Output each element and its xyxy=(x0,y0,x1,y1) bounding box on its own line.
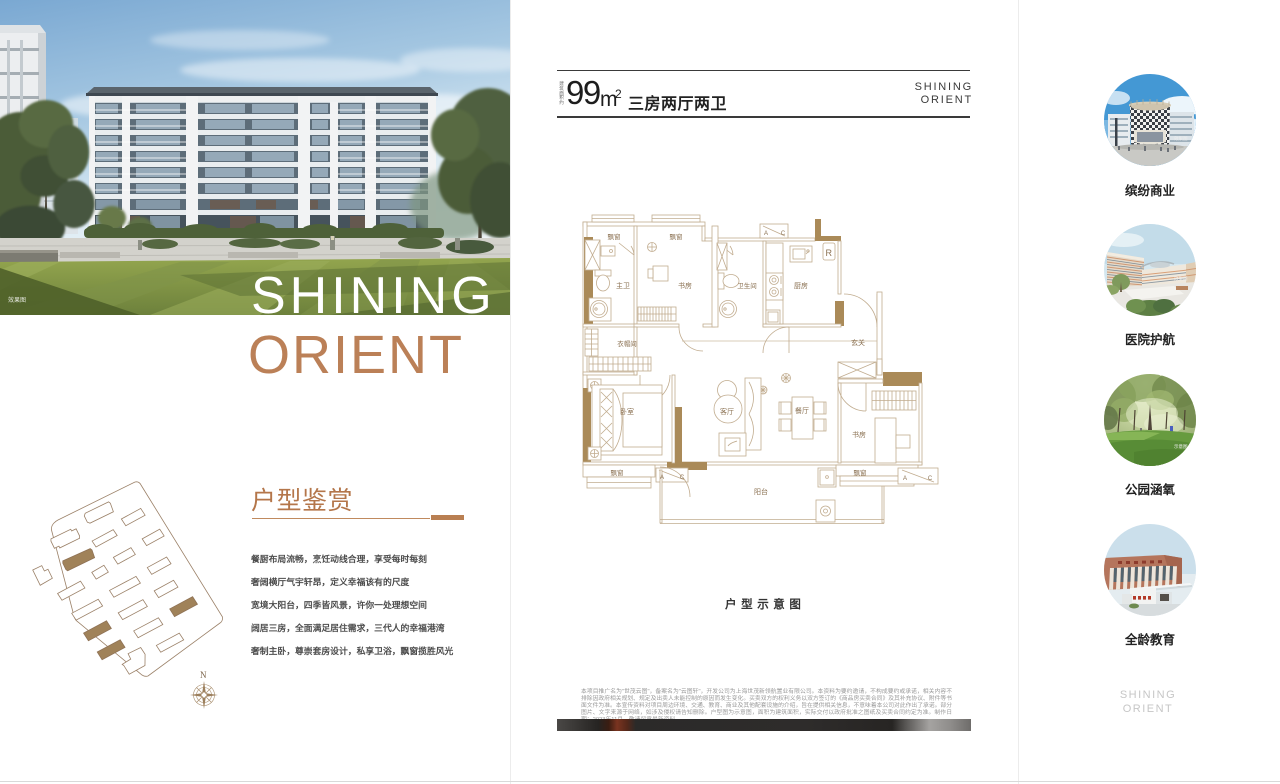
svg-text:飘窗: 飘窗 xyxy=(854,468,867,477)
svg-text:玄关: 玄关 xyxy=(851,338,865,347)
svg-text:厨房: 厨房 xyxy=(794,281,808,290)
svg-text:卧室: 卧室 xyxy=(620,407,634,416)
svg-text:C: C xyxy=(781,231,786,237)
svg-text:阳台: 阳台 xyxy=(754,487,768,496)
svg-text:餐厅: 餐厅 xyxy=(795,406,809,415)
svg-text:A: A xyxy=(764,231,768,237)
svg-text:衣帽间: 衣帽间 xyxy=(617,339,637,348)
svg-text:C: C xyxy=(680,475,685,481)
svg-text:书房: 书房 xyxy=(678,281,692,290)
svg-text:A: A xyxy=(903,476,907,482)
svg-text:客厅: 客厅 xyxy=(720,407,734,416)
svg-text:示意图: 示意图 xyxy=(1174,443,1188,450)
svg-text:飘窗: 飘窗 xyxy=(611,468,624,477)
svg-text:效果图: 效果图 xyxy=(8,296,26,304)
svg-text:书房: 书房 xyxy=(852,430,866,439)
svg-text:飘窗: 飘窗 xyxy=(670,232,683,241)
svg-text:卫生间: 卫生间 xyxy=(737,281,757,290)
svg-text:主卫: 主卫 xyxy=(616,281,630,290)
svg-text:飘窗: 飘窗 xyxy=(608,232,621,241)
svg-text:N: N xyxy=(200,670,207,680)
svg-text:A: A xyxy=(660,475,664,481)
svg-text:效果图: 效果图 xyxy=(1174,275,1188,282)
svg-text:C: C xyxy=(928,476,933,482)
svg-text:效果图: 效果图 xyxy=(1174,135,1188,142)
svg-text:R: R xyxy=(826,248,833,258)
